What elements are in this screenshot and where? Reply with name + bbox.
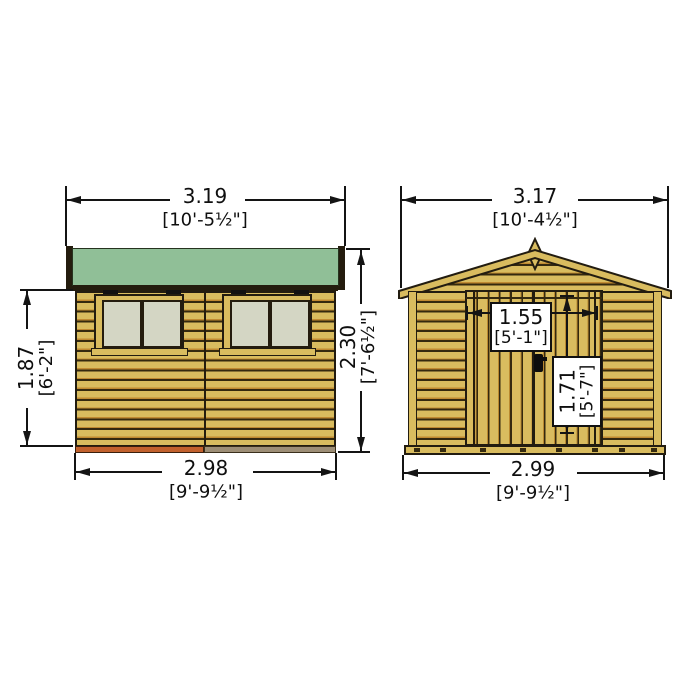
floor-bearer-end <box>651 448 657 452</box>
dim-value: 2.30 <box>337 310 359 384</box>
dim-imperial: [5'-1"] <box>494 329 548 349</box>
floor-bearer-end <box>592 448 598 452</box>
side-base-bearer-rear <box>204 446 336 453</box>
dim-value: 1.55 <box>499 306 544 329</box>
side-base-bearer-front <box>75 446 204 453</box>
window-frame <box>102 300 182 348</box>
dim-imperial: [6'-2"] <box>37 340 57 397</box>
floor-bearer-end <box>440 448 446 452</box>
floor-bearer-end <box>520 448 526 452</box>
dim-imperial: [7'-6½"] <box>359 310 379 384</box>
dim-imperial: [9'-9½"] <box>169 482 243 503</box>
dim-value: 2.99 <box>511 457 556 481</box>
front-base <box>404 445 666 455</box>
dim-value: 1.87 <box>15 340 37 397</box>
dim-value: 2.98 <box>184 456 229 480</box>
dim-imperial: [9'-9½"] <box>496 483 570 504</box>
side-roof-felt <box>72 248 339 286</box>
dim-imperial: [5'-7"] <box>579 365 598 419</box>
window-hinge <box>294 290 309 294</box>
shed-technical-drawing: 3.19 [10'-5½"] 3.17 [10'-4½"] 1.87 [6'-2… <box>0 0 700 700</box>
window-hinge <box>231 290 246 294</box>
front-corner-trim-left <box>408 291 417 447</box>
window-sill <box>219 348 316 356</box>
dim-imperial: [10'-4½"] <box>492 210 578 231</box>
window-pane <box>272 302 308 346</box>
dim-value: 3.17 <box>513 184 558 208</box>
dim-label: 1.87 [6'-2"] <box>15 340 57 397</box>
window-hinge <box>166 290 181 294</box>
floor-bearer-end <box>414 448 420 452</box>
dim-label-box: 1.71 [5'-7"] <box>552 356 602 427</box>
window-frame <box>230 300 310 348</box>
side-roof-bargeboard-right <box>338 246 345 290</box>
side-wall-panel-joint <box>204 293 206 445</box>
dim-label: 2.30 [7'-6½"] <box>337 310 379 384</box>
dim-label-box: 1.55 [5'-1"] <box>490 302 552 352</box>
front-corner-trim-right <box>653 291 662 447</box>
window-sill <box>91 348 188 356</box>
dim-value: 1.71 <box>557 365 579 419</box>
window-pane <box>144 302 180 346</box>
window-pane <box>232 302 268 346</box>
floor-bearer-end <box>480 448 486 452</box>
floor-bearer-end <box>619 448 625 452</box>
window-pane <box>104 302 140 346</box>
dim-value: 3.19 <box>183 184 228 208</box>
window-hinge <box>103 290 118 294</box>
floor-bearer-end <box>556 448 562 452</box>
door-handle <box>542 357 547 361</box>
dim-imperial: [10'-5½"] <box>162 210 248 231</box>
